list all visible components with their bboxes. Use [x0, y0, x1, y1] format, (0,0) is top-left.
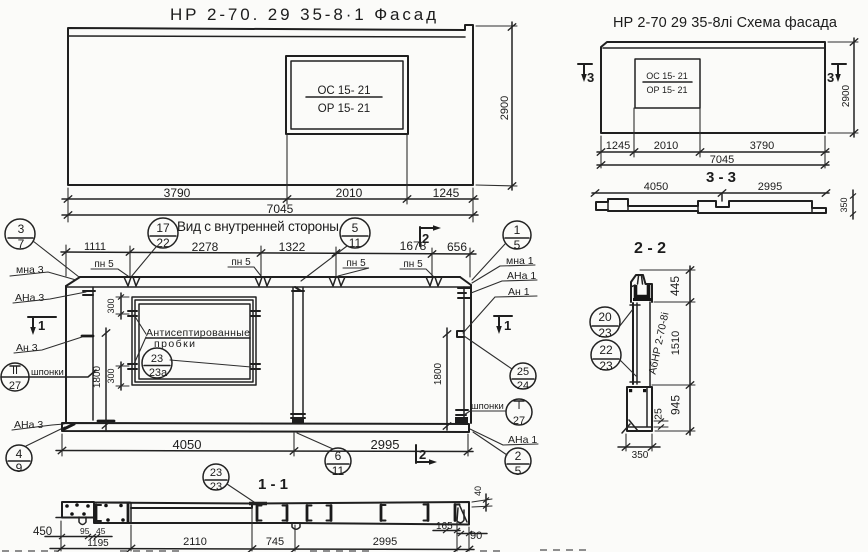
svg-text:165: 165	[436, 521, 453, 532]
svg-text:27: 27	[9, 380, 21, 392]
svg-text:24: 24	[517, 380, 529, 392]
svg-text:11: 11	[332, 464, 345, 478]
svg-text:пн 5: пн 5	[94, 259, 114, 270]
svg-text:1: 1	[504, 318, 511, 333]
svg-text:1: 1	[38, 318, 45, 333]
svg-text:4: 4	[16, 447, 23, 461]
svg-text:пн 5: пн 5	[231, 257, 251, 268]
svg-text:1245: 1245	[606, 140, 630, 152]
svg-text:пн 5: пн 5	[403, 259, 423, 270]
svg-text:656: 656	[447, 240, 467, 254]
svg-text:25: 25	[517, 366, 529, 378]
svg-text:2900: 2900	[499, 96, 511, 120]
svg-text:95: 95	[80, 526, 90, 536]
svg-text:2: 2	[515, 449, 522, 463]
svg-text:ОС 15- 21: ОС 15- 21	[646, 71, 688, 81]
svg-text:2995: 2995	[758, 181, 782, 193]
svg-text:9: 9	[16, 461, 23, 475]
svg-text:350: 350	[839, 197, 849, 212]
svg-text:пн 5: пн 5	[346, 258, 366, 269]
svg-text:23а: 23а	[149, 367, 168, 379]
svg-text:1 - 1: 1 - 1	[258, 476, 288, 493]
svg-text:2278: 2278	[192, 240, 219, 254]
svg-text:23: 23	[210, 481, 222, 493]
svg-text:1: 1	[514, 223, 521, 237]
svg-text:40: 40	[473, 486, 483, 496]
svg-text:Вид с внутренней стороны: Вид с внутренней стороны	[177, 219, 339, 234]
svg-text:1678: 1678	[400, 239, 427, 253]
svg-text:НР 2-70 29 35-8лі Схема фасада: НР 2-70 29 35-8лі Схема фасада	[613, 15, 838, 31]
svg-text:2010: 2010	[654, 140, 678, 152]
svg-text:445: 445	[668, 276, 682, 296]
svg-text:945: 945	[669, 395, 683, 415]
svg-text:7045: 7045	[267, 202, 294, 216]
svg-text:7: 7	[18, 237, 25, 251]
svg-text:2 - 2: 2 - 2	[634, 240, 666, 257]
svg-text:23: 23	[210, 467, 222, 479]
svg-text:23: 23	[599, 359, 613, 373]
svg-text:3: 3	[827, 70, 834, 85]
svg-text:3 - 3: 3 - 3	[706, 169, 736, 186]
svg-text:II: II	[12, 365, 18, 377]
svg-text:17: 17	[156, 221, 170, 235]
svg-text:ОР 15- 21: ОР 15- 21	[646, 85, 687, 95]
svg-text:1322: 1322	[279, 240, 306, 254]
svg-text:22: 22	[156, 236, 170, 250]
svg-text:45: 45	[96, 526, 106, 536]
svg-text:шпонки: шпонки	[471, 401, 504, 412]
svg-text:7045: 7045	[710, 154, 734, 166]
svg-text:1245: 1245	[433, 186, 460, 200]
svg-text:2: 2	[419, 447, 426, 462]
svg-text:745: 745	[266, 536, 284, 548]
svg-text:5: 5	[515, 464, 522, 478]
svg-text:20: 20	[598, 310, 612, 324]
svg-text:2900: 2900	[841, 84, 852, 107]
svg-text:НР 2-70. 29 35-8·1 Фасад: НР 2-70. 29 35-8·1 Фасад	[170, 5, 436, 24]
svg-text:4050: 4050	[173, 437, 202, 452]
svg-text:3: 3	[587, 70, 594, 85]
svg-text:25: 25	[653, 408, 665, 420]
svg-text:5: 5	[514, 238, 521, 252]
svg-text:шпонки: шпонки	[31, 367, 64, 378]
svg-text:300: 300	[106, 368, 116, 383]
svg-text:4050: 4050	[644, 181, 668, 193]
svg-text:5: 5	[352, 221, 359, 235]
svg-text:ОР 15- 21: ОР 15- 21	[318, 103, 370, 115]
svg-text:2110: 2110	[183, 536, 207, 548]
svg-text:1510: 1510	[670, 331, 682, 355]
svg-text:11: 11	[349, 236, 362, 250]
svg-text:3790: 3790	[164, 186, 191, 200]
svg-text:ОС 15- 21: ОС 15- 21	[317, 85, 370, 97]
svg-text:2995: 2995	[373, 536, 397, 548]
svg-text:22: 22	[599, 343, 613, 357]
svg-text:90: 90	[470, 530, 482, 542]
svg-text:3790: 3790	[750, 140, 774, 152]
svg-text:23: 23	[598, 326, 612, 340]
svg-text:6: 6	[335, 449, 342, 463]
svg-text:1111: 1111	[84, 241, 106, 253]
svg-text:350: 350	[632, 450, 649, 461]
svg-text:2995: 2995	[371, 437, 400, 452]
svg-text:I: I	[517, 400, 520, 412]
svg-text:3: 3	[18, 222, 25, 236]
svg-text:1195: 1195	[87, 538, 109, 549]
svg-text:27: 27	[513, 415, 525, 427]
svg-text:300: 300	[106, 298, 116, 313]
svg-text:1800: 1800	[92, 365, 103, 388]
svg-text:1800: 1800	[433, 362, 444, 385]
svg-text:23: 23	[151, 353, 163, 365]
svg-text:450: 450	[33, 526, 52, 538]
svg-text:2010: 2010	[336, 186, 363, 200]
